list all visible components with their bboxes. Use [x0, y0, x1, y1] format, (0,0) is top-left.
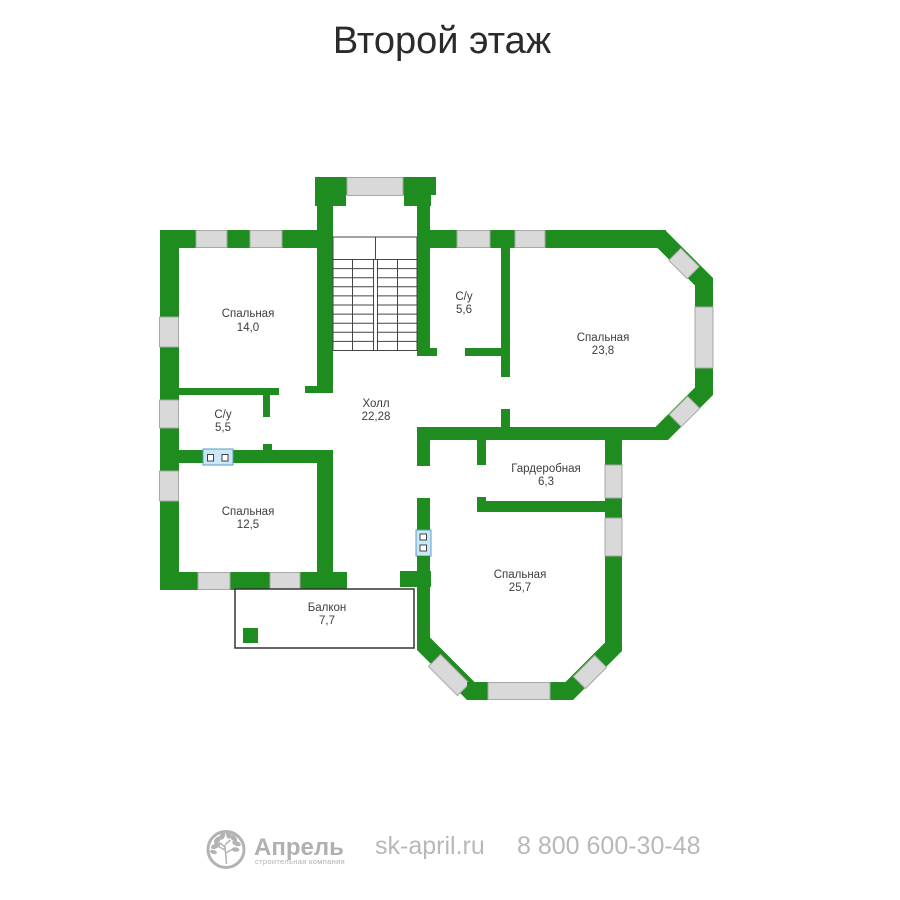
- svg-text:С/у: С/у: [214, 409, 232, 421]
- svg-text:Спальная: Спальная: [222, 506, 275, 518]
- svg-text:Спальная: Спальная: [577, 332, 630, 344]
- svg-text:Спальная: Спальная: [222, 308, 275, 320]
- svg-text:25,7: 25,7: [509, 582, 531, 594]
- svg-text:22,28: 22,28: [362, 411, 391, 423]
- svg-text:6,3: 6,3: [538, 476, 554, 488]
- svg-text:12,5: 12,5: [237, 519, 259, 531]
- svg-text:5,5: 5,5: [215, 422, 231, 434]
- svg-text:sk-april.ru: sk-april.ru: [375, 832, 485, 860]
- svg-text:7,7: 7,7: [319, 615, 335, 627]
- svg-text:Балкон: Балкон: [308, 602, 347, 614]
- svg-text:Гардеробная: Гардеробная: [511, 463, 581, 475]
- svg-text:8 800 600-30-48: 8 800 600-30-48: [517, 832, 700, 860]
- svg-text:23,8: 23,8: [592, 345, 614, 357]
- svg-text:строительная компания: строительная компания: [255, 857, 345, 866]
- svg-text:Холл: Холл: [362, 398, 389, 410]
- svg-text:Второй этаж: Второй этаж: [333, 20, 552, 62]
- svg-text:14,0: 14,0: [237, 322, 259, 334]
- svg-text:С/у: С/у: [455, 291, 473, 303]
- svg-text:Спальная: Спальная: [494, 569, 547, 581]
- svg-text:5,6: 5,6: [456, 304, 472, 316]
